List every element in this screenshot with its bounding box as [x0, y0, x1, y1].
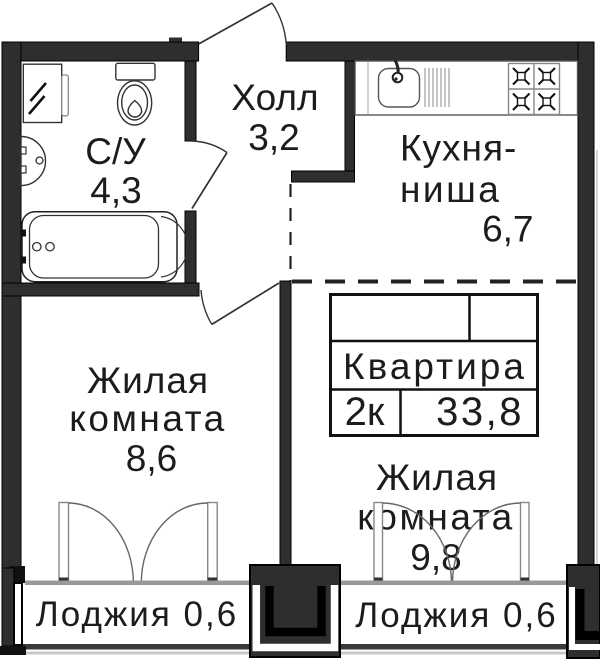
- svg-text:Жилая: Жилая: [376, 457, 498, 498]
- svg-text:9,8: 9,8: [410, 537, 461, 578]
- svg-text:8,6: 8,6: [126, 438, 177, 479]
- svg-text:комната: комната: [69, 398, 226, 439]
- svg-text:Лоджия 0,6: Лоджия 0,6: [355, 596, 557, 635]
- svg-text:Холл: Холл: [231, 77, 318, 118]
- svg-text:Кухня-: Кухня-: [400, 128, 517, 169]
- svg-text:2к: 2к: [345, 390, 385, 434]
- svg-text:Жилая: Жилая: [87, 360, 209, 401]
- svg-text:4,3: 4,3: [90, 170, 141, 211]
- svg-text:С/У: С/У: [85, 131, 146, 172]
- svg-text:6,7: 6,7: [482, 209, 533, 250]
- svg-text:ниша: ниша: [400, 169, 501, 210]
- svg-text:33,8: 33,8: [436, 390, 524, 434]
- svg-text:Квартира: Квартира: [343, 346, 527, 387]
- svg-text:Лоджия 0,6: Лоджия 0,6: [36, 595, 238, 634]
- svg-text:3,2: 3,2: [248, 117, 299, 158]
